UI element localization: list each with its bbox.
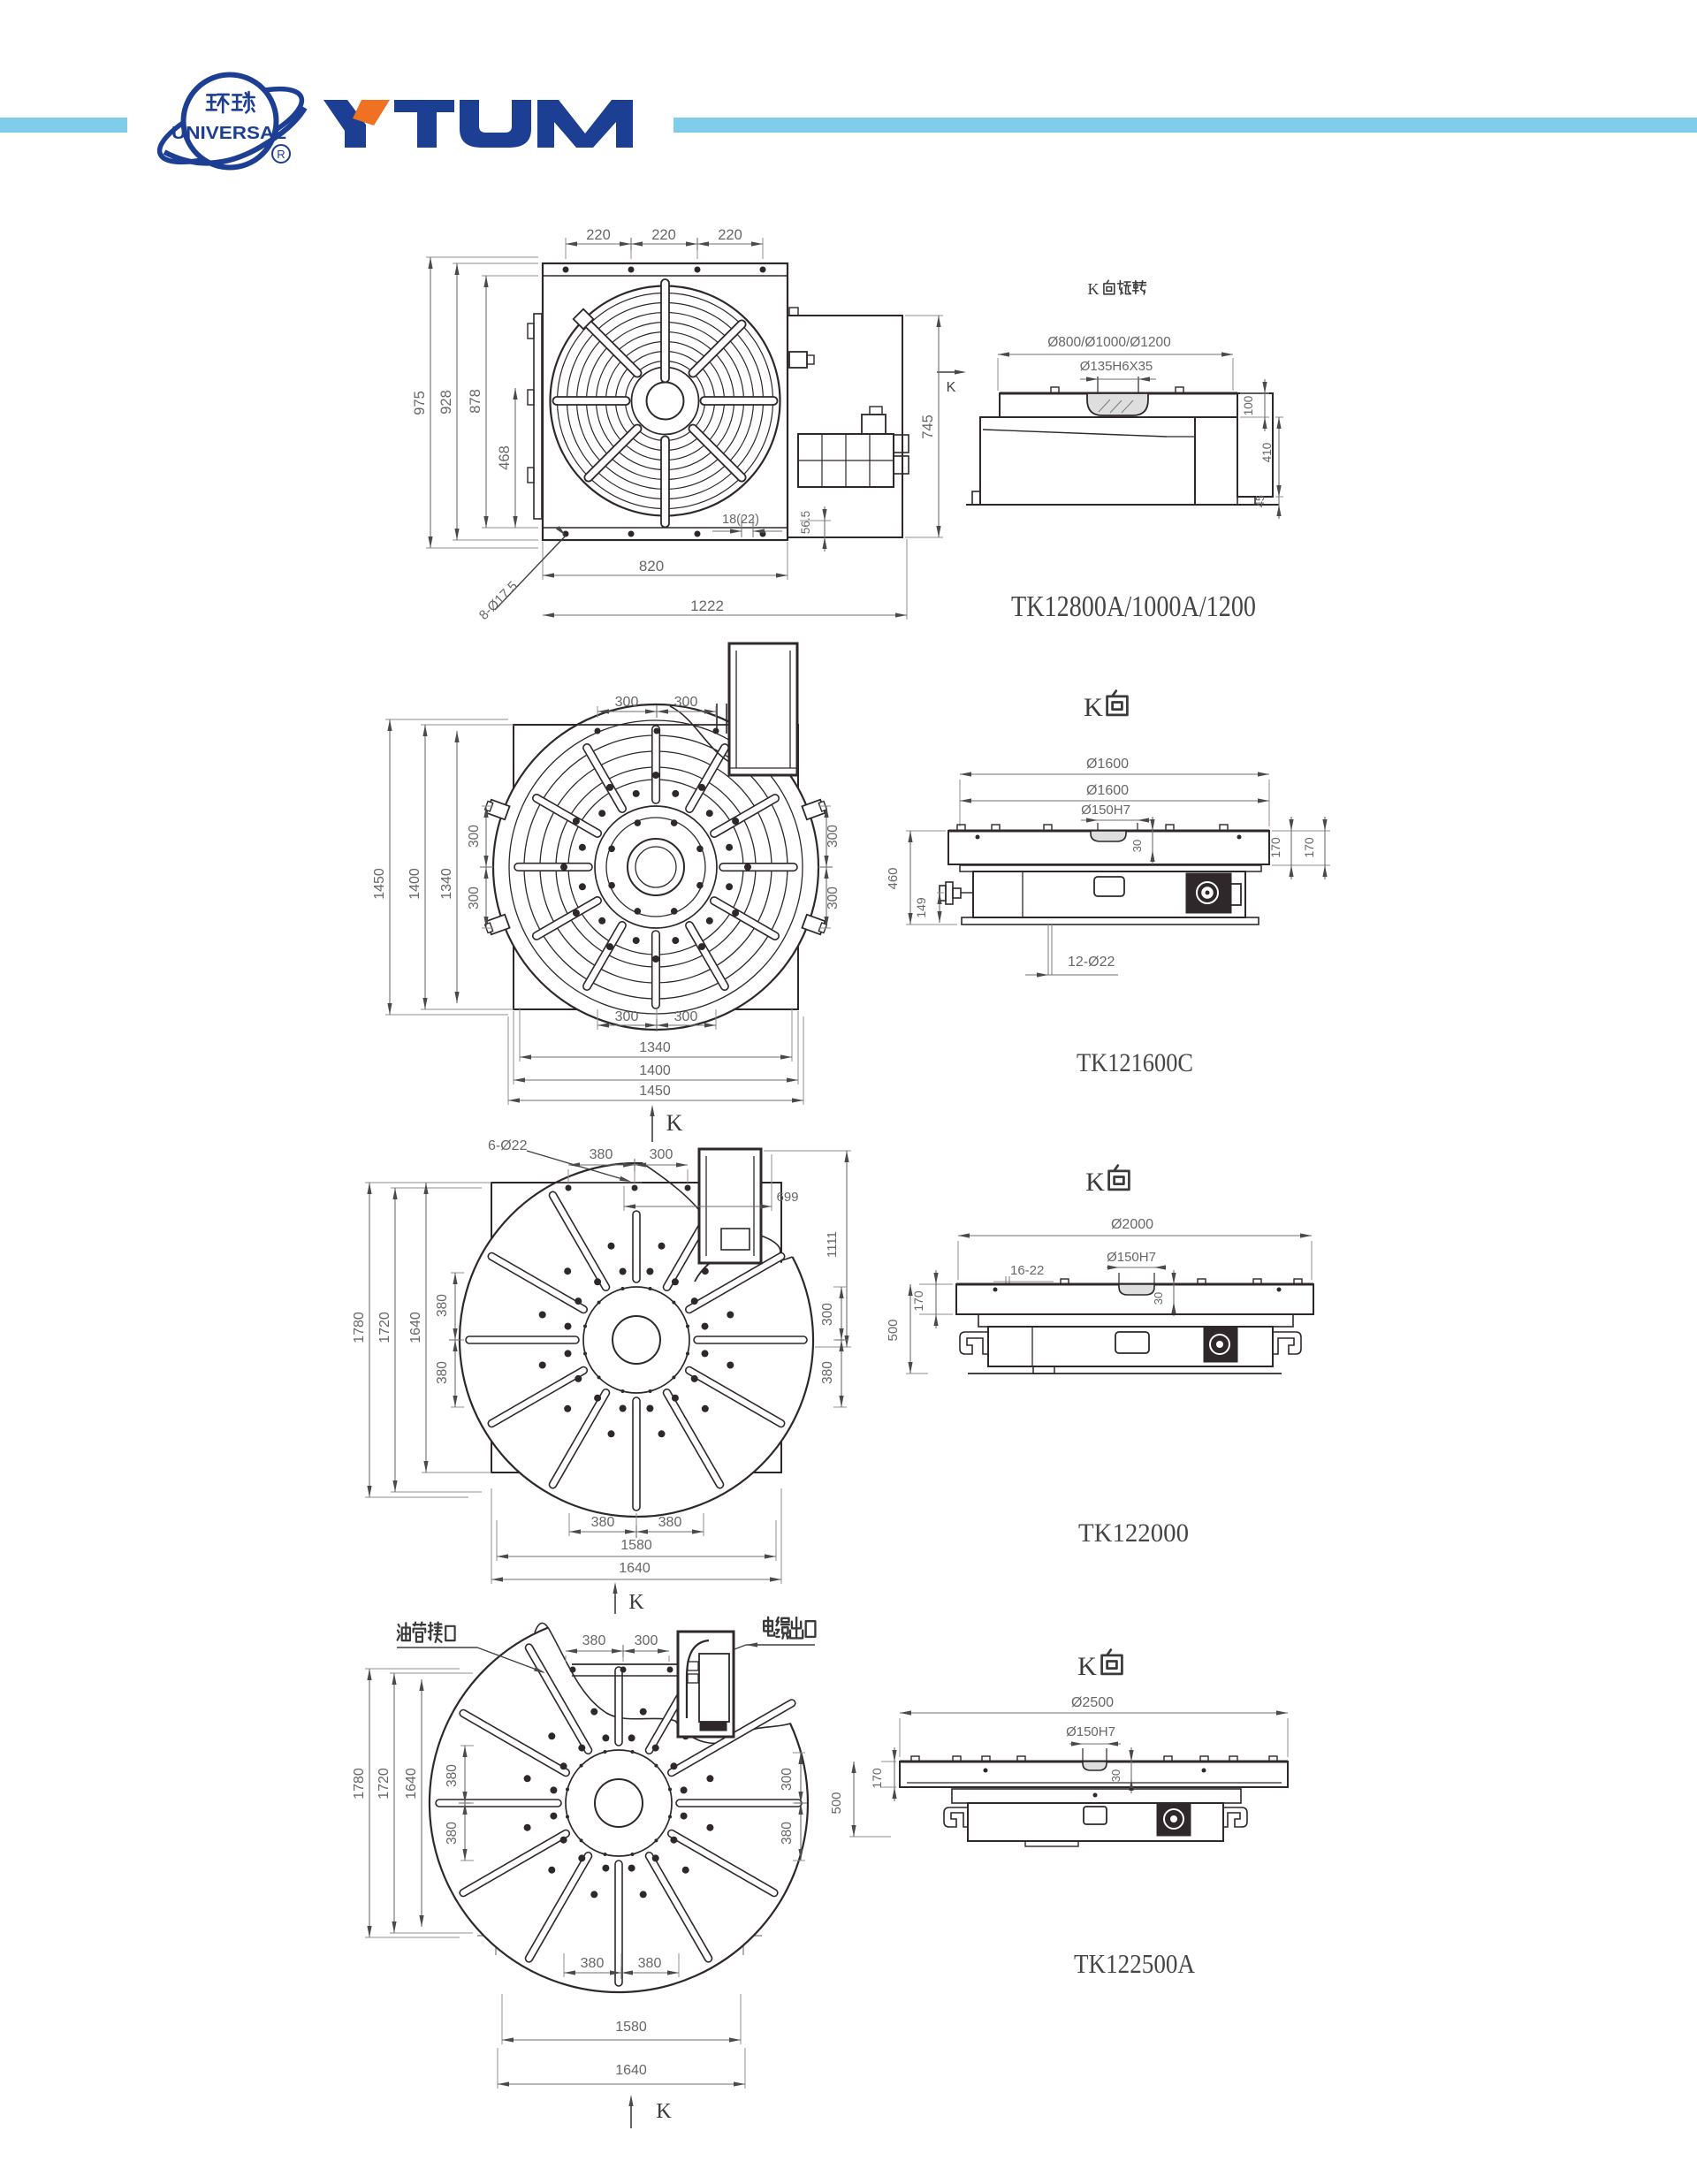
svg-text:K: K: [628, 1591, 644, 1614]
svg-text:500: 500: [829, 1792, 844, 1814]
svg-text:30: 30: [1152, 1292, 1165, 1305]
svg-text:380: 380: [658, 1515, 682, 1530]
svg-text:300: 300: [615, 1009, 639, 1024]
svg-text:380: 380: [638, 1956, 662, 1971]
svg-text:300: 300: [826, 887, 841, 909]
svg-text:170: 170: [1268, 837, 1282, 858]
svg-text:500: 500: [886, 1319, 901, 1341]
svg-text:30: 30: [1109, 1769, 1122, 1782]
svg-text:TK122000: TK122000: [1078, 1518, 1189, 1548]
svg-text:Ø1600: Ø1600: [1086, 757, 1129, 772]
svg-text:300: 300: [635, 1633, 658, 1648]
svg-text:460: 460: [886, 867, 901, 889]
svg-text:170: 170: [870, 1768, 884, 1789]
svg-text:K: K: [1084, 693, 1103, 722]
svg-text:R: R: [277, 148, 285, 161]
svg-text:468: 468: [497, 445, 513, 470]
svg-text:220: 220: [718, 227, 742, 243]
svg-text:300: 300: [820, 1303, 835, 1326]
svg-text:380: 380: [820, 1361, 835, 1384]
svg-text:Ø150H7: Ø150H7: [1066, 1724, 1115, 1739]
svg-text:1400: 1400: [407, 868, 422, 900]
svg-text:12-Ø22: 12-Ø22: [1068, 955, 1115, 970]
svg-text:380: 380: [590, 1147, 613, 1162]
svg-text:Ø150H7: Ø150H7: [1081, 803, 1130, 818]
svg-text:220: 220: [651, 227, 676, 243]
svg-text:380: 380: [581, 1956, 605, 1971]
svg-text:45: 45: [1254, 495, 1267, 507]
svg-text:380: 380: [591, 1515, 615, 1530]
svg-text:699: 699: [776, 1190, 798, 1205]
svg-text:1400: 1400: [639, 1063, 671, 1078]
svg-text:975: 975: [412, 391, 428, 415]
svg-text:380: 380: [582, 1633, 606, 1648]
svg-text:K: K: [656, 2100, 672, 2123]
svg-text:300: 300: [467, 887, 482, 909]
svg-text:1450: 1450: [372, 868, 387, 900]
svg-text:30: 30: [1130, 840, 1144, 852]
svg-text:16-22: 16-22: [1010, 1263, 1044, 1278]
svg-text:300: 300: [826, 825, 841, 848]
svg-text:1111: 1111: [825, 1231, 840, 1258]
svg-text:410: 410: [1260, 443, 1274, 463]
svg-text:820: 820: [639, 558, 664, 575]
svg-text:300: 300: [650, 1147, 673, 1162]
svg-text:1580: 1580: [615, 2020, 647, 2035]
svg-text:Ø135H6X35: Ø135H6X35: [1080, 359, 1153, 374]
svg-text:1640: 1640: [615, 2063, 647, 2078]
svg-text:1640: 1640: [408, 1312, 423, 1343]
svg-text:1640: 1640: [404, 1768, 419, 1800]
svg-text:K: K: [1088, 280, 1100, 298]
svg-text:1450: 1450: [639, 1084, 671, 1099]
svg-text:Ø2000: Ø2000: [1111, 1217, 1153, 1232]
svg-text:300: 300: [674, 695, 698, 710]
svg-text:149: 149: [914, 897, 928, 918]
svg-text:K: K: [1077, 1652, 1097, 1681]
svg-text:56.5: 56.5: [799, 511, 812, 534]
svg-text:TK122500A: TK122500A: [1074, 1948, 1196, 1979]
svg-text:1640: 1640: [619, 1561, 651, 1576]
svg-text:300: 300: [674, 1009, 698, 1024]
svg-text:380: 380: [445, 1822, 460, 1845]
svg-text:K: K: [947, 380, 956, 395]
svg-text:380: 380: [780, 1822, 795, 1845]
svg-text:6-Ø22: 6-Ø22: [488, 1138, 528, 1153]
svg-text:220: 220: [586, 227, 611, 243]
svg-text:K: K: [1085, 1168, 1105, 1197]
svg-text:100: 100: [1242, 396, 1255, 416]
svg-text:1340: 1340: [439, 868, 454, 900]
svg-text:Ø800/Ø1000/Ø1200: Ø800/Ø1000/Ø1200: [1047, 335, 1171, 350]
svg-text:380: 380: [435, 1361, 450, 1384]
svg-text:380: 380: [445, 1764, 460, 1787]
svg-text:300: 300: [615, 695, 639, 710]
svg-text:878: 878: [468, 389, 483, 414]
svg-text:1720: 1720: [377, 1768, 392, 1800]
svg-text:Ø1600: Ø1600: [1086, 783, 1129, 798]
svg-text:TK12800A/1000A/1200: TK12800A/1000A/1200: [1011, 590, 1256, 623]
svg-text:1780: 1780: [352, 1312, 367, 1343]
svg-text:TK121600C: TK121600C: [1077, 1048, 1193, 1077]
svg-text:1340: 1340: [639, 1040, 671, 1055]
svg-text:380: 380: [435, 1294, 450, 1317]
svg-text:1222: 1222: [690, 597, 724, 614]
svg-text:170: 170: [1302, 837, 1316, 858]
svg-text:Ø150H7: Ø150H7: [1107, 1250, 1156, 1265]
svg-text:928: 928: [438, 390, 454, 415]
svg-text:745: 745: [920, 415, 936, 439]
svg-text:Ø2500: Ø2500: [1071, 1695, 1114, 1710]
svg-text:K: K: [666, 1110, 683, 1136]
svg-text:1580: 1580: [620, 1538, 652, 1553]
svg-text:300: 300: [467, 825, 482, 848]
svg-text:1780: 1780: [352, 1768, 367, 1800]
svg-text:1720: 1720: [377, 1312, 392, 1343]
svg-text:300: 300: [780, 1768, 795, 1791]
svg-text:18(22): 18(22): [722, 513, 759, 527]
svg-text:170: 170: [911, 1290, 925, 1312]
